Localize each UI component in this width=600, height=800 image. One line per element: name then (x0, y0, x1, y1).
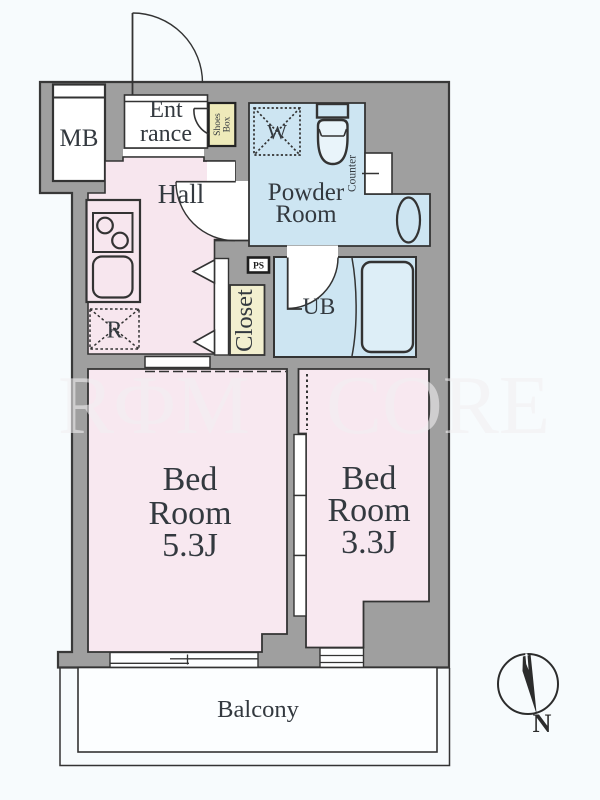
svg-text:5.3J: 5.3J (162, 527, 218, 564)
svg-text:Ent: Ent (149, 97, 183, 123)
svg-text:W: W (267, 120, 287, 144)
svg-text:CORE: CORE (326, 359, 550, 452)
svg-text:R: R (106, 318, 122, 344)
svg-text:Shoes: Shoes (213, 113, 223, 136)
svg-text:3.3J: 3.3J (341, 524, 397, 561)
svg-text:RΦM: RΦM (58, 359, 250, 452)
svg-text:MB: MB (60, 125, 99, 152)
svg-text:Bed: Bed (163, 461, 218, 498)
svg-text:Counter: Counter (347, 155, 359, 192)
svg-text:Closet: Closet (231, 289, 258, 352)
svg-text:Box: Box (223, 116, 233, 132)
svg-text:N: N (533, 709, 552, 738)
svg-text:Balcony: Balcony (217, 696, 299, 723)
svg-text:Room: Room (275, 201, 337, 228)
svg-text:UB: UB (303, 294, 336, 320)
svg-text:PS: PS (253, 262, 264, 272)
svg-text:rance: rance (140, 121, 192, 147)
